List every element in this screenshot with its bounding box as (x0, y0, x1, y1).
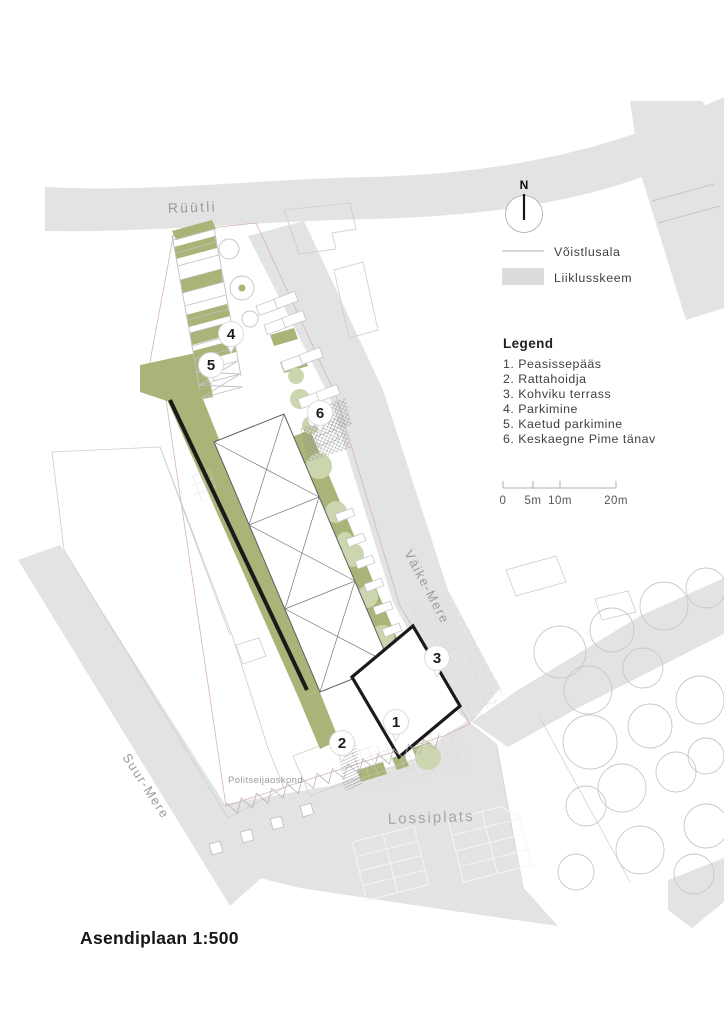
svg-text:2: 2 (338, 735, 346, 752)
street-northeast (630, 101, 724, 320)
key-label-voistlusala: Võistlusala (554, 245, 621, 259)
north-arrow-label: N (520, 178, 529, 192)
legend-item-1: 1. Peasissepääs (503, 357, 601, 371)
street-ruutli (45, 97, 724, 231)
site-plan-page: Rüütli Väike-Mere Suur-Mere Lossiplats P… (0, 0, 724, 1024)
legend-item-3: 3. Kohviku terrass (503, 387, 611, 401)
legend: Legend 1. Peasissepääs 2. Rattahoidja 3.… (503, 336, 656, 446)
svg-text:5: 5 (207, 357, 215, 374)
building-east-a (506, 556, 566, 596)
key-label-liiklusskeem: Liiklusskeem (554, 271, 632, 285)
key-swatch-area (502, 268, 544, 285)
legend-item-6: 6. Keskaegne Pime tänav (503, 432, 656, 446)
map-key: Võistlusala Liiklusskeem (502, 245, 632, 285)
page-title: Asendiplaan 1:500 (80, 928, 239, 948)
legend-heading: Legend (503, 336, 553, 351)
svg-text:4: 4 (227, 326, 236, 343)
scale-label-10m: 10m (548, 495, 572, 507)
scale-label-20m: 20m (604, 495, 628, 507)
street-network (18, 97, 724, 928)
building-label-politseijaoskond: Politseijaoskond (228, 775, 303, 786)
building-east-b (595, 591, 636, 620)
street-label-ruutli: Rüütli (168, 198, 218, 216)
scale-label-0: 0 (500, 495, 507, 507)
street-suur-mere (18, 545, 268, 906)
legend-item-5: 5. Kaetud parkimine (503, 417, 623, 431)
street-label-lossiplats: Lossiplats (388, 808, 475, 828)
site-plan-drawing: Rüütli Väike-Mere Suur-Mere Lossiplats P… (0, 0, 724, 1024)
scale-label-5m: 5m (525, 495, 542, 507)
svg-text:3: 3 (433, 650, 441, 667)
street-corner-wedge (668, 858, 724, 928)
scale-bar: 0 5m 10m 20m (500, 481, 628, 507)
legend-item-4: 4. Parkimine (503, 402, 578, 416)
svg-text:1: 1 (392, 714, 400, 731)
street-park-top (472, 578, 724, 747)
svg-text:6: 6 (316, 405, 324, 422)
legend-item-2: 2. Rattahoidja (503, 372, 586, 386)
